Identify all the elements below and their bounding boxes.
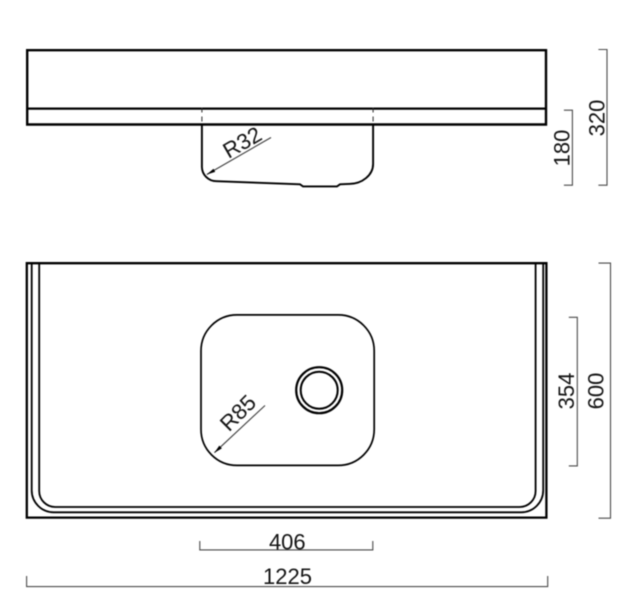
svg-text:320: 320 bbox=[585, 100, 610, 137]
svg-text:406: 406 bbox=[269, 529, 306, 554]
svg-text:180: 180 bbox=[550, 130, 575, 167]
svg-text:600: 600 bbox=[584, 373, 609, 410]
svg-text:354: 354 bbox=[554, 373, 579, 410]
svg-text:1225: 1225 bbox=[263, 564, 312, 589]
